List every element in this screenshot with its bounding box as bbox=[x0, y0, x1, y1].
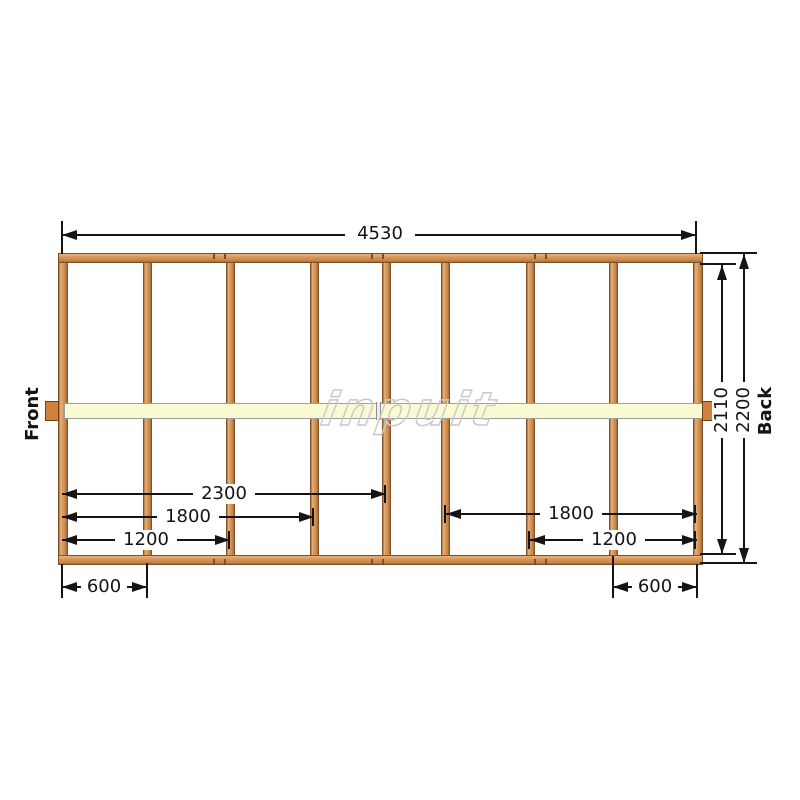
arrow-down-icon bbox=[717, 539, 727, 554]
plate-joint-mark bbox=[371, 254, 373, 259]
ext-tick bbox=[444, 505, 446, 523]
arrow-right-icon bbox=[682, 582, 697, 592]
arrow-left-icon bbox=[613, 582, 628, 592]
arrow-left-icon bbox=[62, 512, 77, 522]
ext-tick bbox=[694, 505, 696, 523]
beam-end-stub-left bbox=[45, 401, 59, 421]
dim-bottom-right-600: 600 bbox=[632, 577, 678, 597]
plate-joint-mark bbox=[534, 254, 536, 259]
arrow-left-icon bbox=[62, 535, 77, 545]
ext-line bbox=[696, 564, 698, 598]
back-label: Back bbox=[756, 386, 776, 436]
ext-tick bbox=[228, 531, 230, 549]
arrow-left-icon bbox=[62, 489, 77, 499]
plate-joint-mark bbox=[382, 254, 384, 259]
arrow-left-icon bbox=[530, 535, 545, 545]
ext-line bbox=[61, 564, 63, 598]
arrow-left-icon bbox=[62, 230, 77, 240]
plate-joint-mark bbox=[545, 559, 547, 564]
dim-left-1200: 1200 bbox=[115, 530, 177, 550]
dim-inner-height: 2110 bbox=[712, 382, 732, 438]
dim-right-1200: 1200 bbox=[583, 530, 645, 550]
plate-joint-mark bbox=[213, 559, 215, 564]
dim-right-1800: 1800 bbox=[540, 504, 602, 524]
arrow-down-icon bbox=[739, 548, 749, 563]
arrow-left-icon bbox=[62, 582, 77, 592]
plate-joint-mark bbox=[371, 559, 373, 564]
arrow-left-icon bbox=[446, 509, 461, 519]
wall-framing-diagram: inpuit 4530 2110 2200 Back Front 2300 18… bbox=[0, 0, 800, 800]
dim-overall-width: 4530 bbox=[345, 224, 415, 244]
arrow-up-icon bbox=[717, 265, 727, 280]
watermark-text: inpuit bbox=[317, 382, 502, 436]
dim-left-2300: 2300 bbox=[193, 484, 255, 504]
plate-joint-mark bbox=[224, 559, 226, 564]
arrow-right-icon bbox=[681, 230, 696, 240]
ext-tick bbox=[312, 508, 314, 526]
ext-line bbox=[146, 563, 148, 598]
dim-overall-height: 2200 bbox=[734, 382, 754, 438]
dim-left-1800: 1800 bbox=[157, 507, 219, 527]
plate-joint-mark bbox=[213, 254, 215, 259]
ext-tick bbox=[694, 531, 696, 549]
plate-joint-mark bbox=[382, 559, 384, 564]
arrow-right-icon bbox=[132, 582, 147, 592]
top-plate bbox=[58, 253, 703, 263]
ext-tick bbox=[528, 531, 530, 549]
front-label: Front bbox=[23, 384, 43, 444]
bottom-plate bbox=[58, 555, 703, 565]
dim-bottom-left-600: 600 bbox=[81, 577, 127, 597]
ext-tick bbox=[384, 485, 386, 503]
arrow-up-icon bbox=[739, 254, 749, 269]
plate-joint-mark bbox=[545, 254, 547, 259]
plate-joint-mark bbox=[224, 254, 226, 259]
plate-joint-mark bbox=[534, 559, 536, 564]
